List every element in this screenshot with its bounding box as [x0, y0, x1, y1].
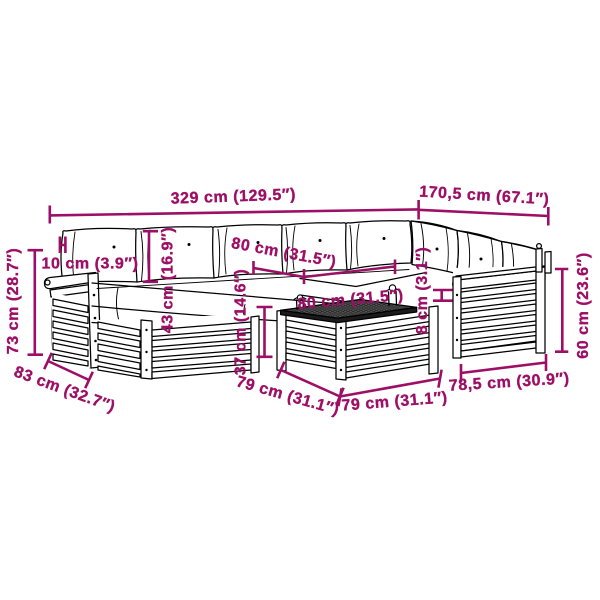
svg-text:37 cm (14.6″): 37 cm (14.6″)	[233, 269, 250, 375]
svg-text:10 cm (3.9″): 10 cm (3.9″)	[42, 256, 139, 273]
svg-text:60 cm (23.6″): 60 cm (23.6″)	[575, 252, 592, 358]
svg-text:73 cm (28.7″): 73 cm (28.7″)	[5, 248, 22, 354]
svg-text:8 cm (3.1″): 8 cm (3.1″)	[414, 247, 431, 335]
svg-text:329 cm (129.5″): 329 cm (129.5″)	[170, 186, 296, 207]
svg-text:78,5 cm (30.9″): 78,5 cm (30.9″)	[448, 370, 570, 394]
svg-text:170,5 cm (67.1″): 170,5 cm (67.1″)	[419, 184, 550, 209]
svg-text:43 cm (16.9″): 43 cm (16.9″)	[160, 227, 177, 333]
svg-text:79 cm (31.1″): 79 cm (31.1″)	[234, 373, 341, 419]
